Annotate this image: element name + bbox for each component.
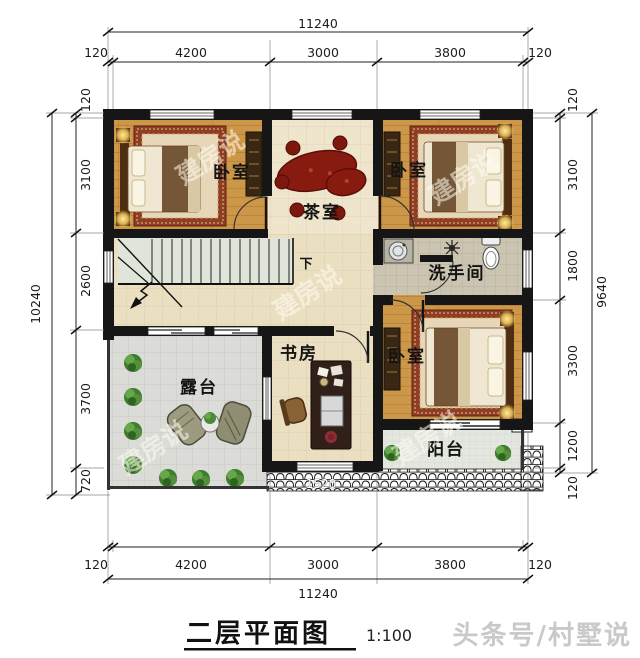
tea-chair bbox=[290, 203, 304, 217]
title-underline bbox=[184, 648, 356, 651]
floor-plan-drawing: 卧室 茶室 卧室 洗手间 书房 卧室 露台 阳台 下 1520 bbox=[0, 0, 640, 658]
title-block: 二层平面图 1:100 头条号/村墅说 头条号/村墅说 bbox=[184, 619, 634, 653]
dim-right-seg: 1800 bbox=[565, 250, 580, 282]
bush bbox=[124, 354, 142, 372]
lamp-glow bbox=[498, 310, 516, 328]
bed-duvet bbox=[434, 328, 458, 406]
dim-left-seg: 720 bbox=[78, 469, 93, 493]
dim-left-seg: 3700 bbox=[78, 383, 93, 415]
label-tea-room: 茶室 bbox=[303, 202, 341, 223]
label-bedroom-bottom-right: 卧室 bbox=[388, 346, 426, 367]
pillow bbox=[488, 368, 503, 396]
label-study: 书房 bbox=[280, 343, 318, 364]
window bbox=[523, 250, 532, 288]
pillow bbox=[132, 180, 145, 206]
floor-plan-page: 卧室 茶室 卧室 洗手间 书房 卧室 露台 阳台 下 1520 bbox=[0, 0, 640, 658]
dim-top-seg: 120 bbox=[528, 45, 552, 60]
sliding-door bbox=[148, 327, 205, 335]
dim-right-seg: 3100 bbox=[565, 159, 580, 191]
bush bbox=[495, 445, 511, 461]
footer-watermark: 头条号/村墅说 bbox=[453, 621, 633, 651]
desk-bowl bbox=[320, 378, 328, 386]
dim-left-overall: 10240 bbox=[28, 284, 43, 324]
label-rail-dimension: 1520 bbox=[306, 477, 337, 491]
window bbox=[297, 462, 353, 471]
label-bathroom: 洗手间 bbox=[429, 263, 486, 284]
dim-bottom-seg: 120 bbox=[84, 557, 108, 572]
dim-top-seg: 3000 bbox=[307, 45, 339, 60]
lamp-glow bbox=[114, 126, 132, 144]
shower-symbol bbox=[444, 240, 460, 256]
dim-bottom-seg: 3000 bbox=[307, 557, 339, 572]
dim-right-seg: 1200 bbox=[565, 430, 580, 462]
lamp-glow bbox=[496, 122, 514, 140]
dim-bottom-seg: 3800 bbox=[434, 557, 466, 572]
dim-bottom-seg: 120 bbox=[528, 557, 552, 572]
sliding-door bbox=[214, 327, 258, 335]
pillow bbox=[132, 150, 145, 176]
dim-top-seg: 4200 bbox=[175, 45, 207, 60]
dim-right-seg: 120 bbox=[565, 88, 580, 112]
label-bedroom-top-right: 卧室 bbox=[390, 160, 428, 181]
label-terrace: 露台 bbox=[180, 377, 218, 398]
bush bbox=[159, 469, 177, 487]
bush bbox=[226, 469, 244, 487]
dim-bottom-overall: 11240 bbox=[298, 586, 338, 601]
dim-right-overall: 9640 bbox=[594, 276, 609, 308]
dim-left-seg: 3100 bbox=[78, 159, 93, 191]
window bbox=[292, 110, 352, 119]
tea-chair bbox=[286, 141, 300, 155]
window bbox=[263, 377, 271, 420]
window bbox=[420, 110, 480, 119]
bush bbox=[124, 388, 142, 406]
dim-top-seg: 120 bbox=[84, 45, 108, 60]
dim-right-seg: 3300 bbox=[565, 345, 580, 377]
bush bbox=[192, 470, 210, 488]
dimension-text-left: 10240 120 3100 2600 3700 720 bbox=[28, 88, 93, 493]
dim-left-seg: 2600 bbox=[78, 265, 93, 297]
window bbox=[150, 110, 214, 119]
toilet-tank bbox=[482, 237, 500, 245]
dim-bottom-seg: 4200 bbox=[175, 557, 207, 572]
label-stairs-down: 下 bbox=[299, 257, 312, 272]
tea-chair bbox=[275, 175, 289, 189]
lamp-glow bbox=[114, 210, 132, 228]
dimension-text-right: 120 3100 1800 3300 1200 120 9640 bbox=[565, 88, 609, 500]
pillow bbox=[488, 336, 503, 364]
tea-chair bbox=[333, 136, 347, 150]
plan-title: 二层平面图 bbox=[186, 619, 331, 649]
plan-scale: 1:100 bbox=[366, 626, 412, 645]
dim-top-seg: 3800 bbox=[434, 45, 466, 60]
bush bbox=[124, 422, 142, 440]
dim-top-overall: 11240 bbox=[298, 16, 338, 31]
dim-left-seg: 120 bbox=[78, 88, 93, 112]
window bbox=[104, 251, 113, 283]
dim-right-seg: 120 bbox=[565, 476, 580, 500]
paper bbox=[330, 365, 342, 376]
dimension-text-top: 11240 120 4200 3000 3800 120 bbox=[84, 16, 552, 60]
window bbox=[523, 352, 532, 400]
pillow bbox=[486, 180, 501, 206]
